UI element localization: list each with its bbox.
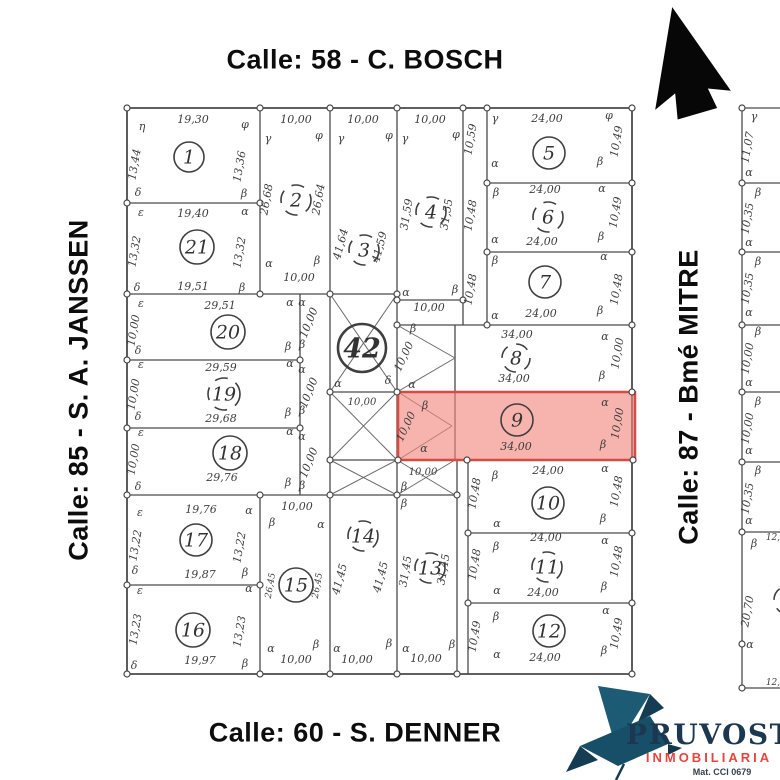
corner-letter: δ xyxy=(135,410,142,423)
corner-letter: β xyxy=(597,230,604,243)
corner-letter: β xyxy=(284,476,291,489)
dimension-label: 10,48 xyxy=(461,273,479,306)
dimension-label: 10,00 xyxy=(738,412,756,445)
dimension-label: 19,51 xyxy=(177,280,209,293)
dimension-label: 10,48 xyxy=(461,199,479,232)
lot-number: 9 xyxy=(511,410,523,432)
corner-letter: β xyxy=(600,644,607,657)
corner-letter: δ xyxy=(135,344,142,357)
dimension-label: 29,76 xyxy=(205,471,238,484)
corner-letter: β xyxy=(600,580,607,593)
corner-letter: β xyxy=(448,638,455,651)
dimension-label: 10,00 xyxy=(283,271,315,284)
corner-letter: α xyxy=(491,233,499,246)
dimension-label: 24,00 xyxy=(524,307,557,320)
partial-lot-circle xyxy=(774,586,780,614)
corner-letter: β xyxy=(241,657,248,670)
corner-letter: β xyxy=(298,479,305,492)
corner-letter: β xyxy=(312,638,319,651)
logo-subtitle: INMOBILIARIA xyxy=(646,750,772,765)
dimension-label: 13,32 xyxy=(230,236,248,269)
corner-letter: α xyxy=(598,182,606,195)
dimension-label: 29,51 xyxy=(203,299,236,312)
corner-letter: α xyxy=(286,357,294,370)
dimension-label: 19,30 xyxy=(177,113,209,126)
corner-letter: γ xyxy=(402,132,409,145)
dimension-label: 10,48 xyxy=(607,545,625,578)
lot-number: 21 xyxy=(184,237,209,259)
corner-letter: α xyxy=(745,376,753,389)
dimension-label: 34,00 xyxy=(500,440,532,453)
dimension-label: 10,00 xyxy=(410,652,442,665)
corner-letter: β xyxy=(409,322,416,335)
dimension-label: 10,00 xyxy=(413,301,445,314)
corner-letter: α xyxy=(746,638,754,651)
dimension-label: 41,45 xyxy=(329,562,350,597)
corner-letter: β xyxy=(754,464,761,477)
corner-letter: α xyxy=(245,504,253,517)
dimension-label: 11,07 xyxy=(738,131,756,164)
corner-letter: α xyxy=(601,534,609,547)
dimension-label: 13,44 xyxy=(125,148,143,181)
corner-letter: α xyxy=(601,330,609,343)
dimension-label: 10,00 xyxy=(391,339,416,373)
corner-letter: α xyxy=(245,582,253,595)
corner-letter: γ xyxy=(492,112,499,125)
corner-letter: β xyxy=(599,512,606,525)
corner-letter: β xyxy=(750,537,757,550)
lot-number: 2 xyxy=(289,190,302,212)
dimension-label: 26,45 xyxy=(311,572,326,600)
dimension-label: 13,22 xyxy=(126,529,144,562)
corner-letter: α xyxy=(333,642,341,655)
logo-registration: Mat. CCI 0679 xyxy=(693,767,752,777)
dimension-label: 26,64 xyxy=(309,183,327,217)
dimension-label: 10,49 xyxy=(607,617,625,650)
corner-letter: β xyxy=(596,304,603,317)
corner-letter: ε xyxy=(138,358,144,371)
corner-letter: β xyxy=(492,610,499,623)
dimension-label: 20,70 xyxy=(738,595,756,629)
corner-letter: γ xyxy=(338,132,345,145)
dimension-label: 31,59 xyxy=(397,198,415,231)
corner-letter: α xyxy=(265,257,273,270)
corner-letter: β xyxy=(313,254,320,267)
corner-letter: α xyxy=(600,250,608,263)
corner-letter: β xyxy=(240,187,247,200)
corner-letter: α xyxy=(745,166,753,179)
dimension-label: 10,00 xyxy=(347,113,379,126)
corner-letter: β xyxy=(491,469,498,482)
dimension-label: 10,00 xyxy=(608,337,626,370)
dimension-label: 29,59 xyxy=(204,361,237,374)
corner-letter: α xyxy=(298,430,306,443)
corner-letter: ε xyxy=(138,206,144,219)
corner-letter: α xyxy=(493,584,501,597)
dimension-label: 10,48 xyxy=(607,475,625,508)
corner-letter: β xyxy=(599,438,606,451)
lot-number: 1 xyxy=(183,147,195,169)
dimension-label: 10,49 xyxy=(607,125,625,158)
corner-letter: α xyxy=(491,157,499,170)
dimension-label: 41,59 xyxy=(369,230,390,265)
corner-letter: ε xyxy=(138,297,144,310)
dimension-label: 34,00 xyxy=(501,328,533,341)
cadastral-map: 12123456742891011121314151617181920 19,3… xyxy=(0,0,780,780)
corner-letter: α xyxy=(745,514,753,527)
corner-letter: α xyxy=(402,642,410,655)
lot-number: 42 xyxy=(343,333,381,364)
cadastral-flyer: Calle: 58 - C. BOSCH Calle: 85 - S. A. J… xyxy=(0,0,780,780)
corner-letter: α xyxy=(745,236,753,249)
corner-letter: β xyxy=(284,406,291,419)
corner-letter: ε xyxy=(137,584,143,597)
dimension-label: 10,35 xyxy=(738,272,756,305)
corner-letter: β xyxy=(421,399,428,412)
corner-letter: α xyxy=(745,306,753,319)
lot-number: 17 xyxy=(184,530,209,552)
dimension-label: 24,00 xyxy=(531,464,564,477)
north-arrow-icon xyxy=(635,0,734,124)
corner-letter: φ xyxy=(385,129,393,142)
lot-number: 4 xyxy=(424,202,437,224)
corner-letter: α xyxy=(408,378,416,391)
dimension-label: 10,00 xyxy=(409,467,438,478)
dimension-label: 10,00 xyxy=(348,397,377,408)
dimension-label: 10,00 xyxy=(341,653,373,666)
dimension-label: 10,00 xyxy=(281,500,313,513)
lot-number: 20 xyxy=(215,322,240,344)
corner-letter: β xyxy=(596,155,603,168)
lot-number: 7 xyxy=(539,272,552,294)
corner-letter: β xyxy=(492,186,499,199)
dimension-label: 24,00 xyxy=(529,531,562,544)
corner-letter: γ xyxy=(751,110,758,123)
dimension-label: 10,59 xyxy=(461,123,479,156)
lot-number: 6 xyxy=(542,207,554,229)
corner-letter: α xyxy=(317,518,325,531)
corner-letter: δ xyxy=(134,281,141,294)
corner-letter: α xyxy=(402,286,410,299)
corner-letter: β xyxy=(754,186,761,199)
corner-letter: α xyxy=(601,462,609,475)
dimension-label: 24,00 xyxy=(528,183,561,196)
lot-number: 3 xyxy=(358,240,370,262)
dimension-label: 24,00 xyxy=(530,112,563,125)
corner-letter: α xyxy=(493,517,501,530)
lot-number: 12 xyxy=(537,621,561,643)
corner-letter: α xyxy=(602,604,610,617)
dimension-label: 19,40 xyxy=(177,207,209,220)
corner-letter: φ xyxy=(315,129,323,142)
corner-letter: β xyxy=(491,254,498,267)
dimension-label: 10,00 xyxy=(738,342,756,375)
dimension-label: 10,49 xyxy=(606,196,624,229)
corner-letter: β xyxy=(284,340,291,353)
dimension-label: 13,23 xyxy=(230,615,248,648)
dimension-label: 10,00 xyxy=(280,653,312,666)
dimension-label: 12, xyxy=(766,678,780,688)
dimension-label: 13,23 xyxy=(126,613,144,646)
lot-number: 15 xyxy=(284,575,308,597)
dimension-label: 13,32 xyxy=(125,235,143,268)
corner-letter: α xyxy=(745,444,753,457)
corner-letter: δ xyxy=(135,186,142,199)
corner-letter: α xyxy=(334,377,342,390)
corner-letter: β xyxy=(400,480,407,493)
corner-letter: α xyxy=(267,642,275,655)
corner-letter: β xyxy=(492,540,499,553)
corner-letter: α xyxy=(493,648,501,661)
dimension-label: 41,64 xyxy=(330,227,351,262)
corner-letter: β xyxy=(598,369,605,382)
corner-letter: β xyxy=(754,325,761,338)
corner-letter: α xyxy=(298,363,306,376)
corner-letter: β xyxy=(451,283,458,296)
corner-letter: α xyxy=(286,296,294,309)
corner-letter: β xyxy=(241,566,248,579)
lot-number: 5 xyxy=(543,143,555,165)
corner-letter: α xyxy=(241,205,249,218)
dimension-label: 26,45 xyxy=(264,572,279,600)
corner-letter: β xyxy=(754,395,761,408)
corner-letter: α xyxy=(491,309,499,322)
lot-number: 18 xyxy=(218,443,242,465)
dimension-label: 19,97 xyxy=(184,654,216,667)
corner-letter: γ xyxy=(265,132,272,145)
lot-number: 10 xyxy=(536,493,560,515)
dimension-label: 24,00 xyxy=(528,651,561,664)
corner-letter: α xyxy=(601,396,609,409)
dimension-label: 41,45 xyxy=(370,560,391,595)
corner-letter: β xyxy=(385,637,392,650)
corner-letter: φ xyxy=(452,128,460,141)
corner-letter: δ xyxy=(135,480,142,493)
dimension-label: 12, xyxy=(766,533,780,543)
dimension-label: 10,00 xyxy=(414,113,446,126)
dimension-label: 24,00 xyxy=(526,586,559,599)
corner-letter: β xyxy=(754,255,761,268)
corner-letter: β xyxy=(268,516,275,529)
corner-letter: δ xyxy=(385,374,392,387)
dimension-label: 29,68 xyxy=(204,412,237,425)
corner-letter: β xyxy=(298,404,305,417)
lot-number: 19 xyxy=(212,384,236,406)
lot-number: 11 xyxy=(535,557,559,579)
corner-letter: ε xyxy=(137,506,143,519)
dimension-label: 13,22 xyxy=(230,531,248,564)
lot-number: 8 xyxy=(510,348,522,370)
dimension-label: 13,36 xyxy=(230,150,248,183)
dimension-label: 10,00 xyxy=(280,113,312,126)
dimension-label: 19,87 xyxy=(184,568,216,581)
lot-number: 14 xyxy=(351,526,375,548)
corner-letter: ε xyxy=(138,426,144,439)
corner-letter: φ xyxy=(605,109,613,122)
corner-letter: δ xyxy=(132,564,139,577)
dimension-label: 10,48 xyxy=(607,273,625,306)
lot-number: 16 xyxy=(181,620,205,642)
corner-letter: η xyxy=(139,120,146,133)
pruvost-logo: PRUVOST INMOBILIARIA Mat. CCI 0679 xyxy=(566,686,780,780)
corner-letter: β xyxy=(238,281,245,294)
dimension-label: 34,00 xyxy=(498,372,530,385)
dimension-label: 10,35 xyxy=(738,482,756,515)
corner-letter: φ xyxy=(241,118,249,131)
corner-letter: δ xyxy=(131,659,138,672)
corner-letter: β xyxy=(298,338,305,351)
corner-letter: α xyxy=(420,442,428,455)
logo-name: PRUVOST xyxy=(626,718,780,751)
corner-letter: β xyxy=(400,497,407,510)
dimension-label: 31,45 xyxy=(396,555,414,588)
dimension-label: 24,00 xyxy=(525,235,558,248)
dimension-label: 19,76 xyxy=(185,503,217,516)
corner-letter: α xyxy=(286,425,294,438)
corner-letter: α xyxy=(298,296,306,309)
dimension-label: 10,35 xyxy=(738,202,756,235)
